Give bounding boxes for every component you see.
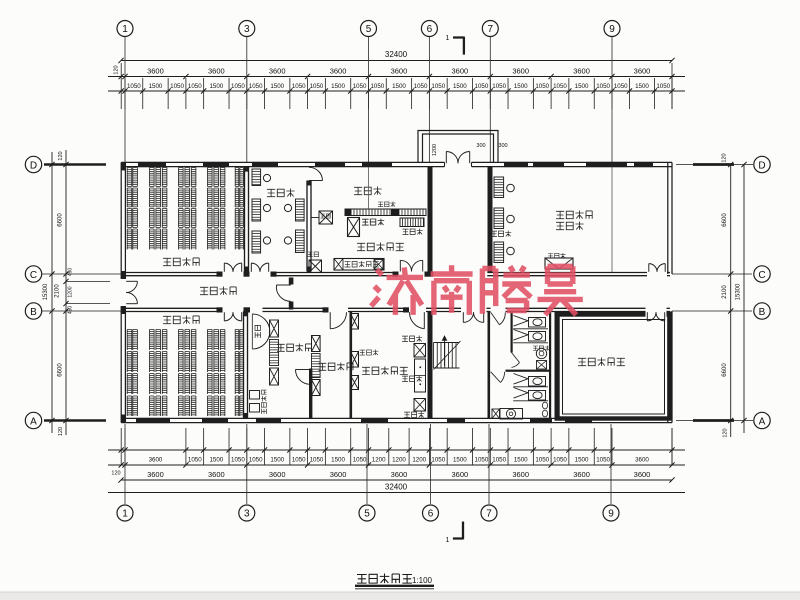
svg-text:15300: 15300: [736, 283, 742, 300]
svg-text:C: C: [30, 270, 37, 281]
svg-text:1500: 1500: [392, 83, 406, 90]
svg-text:3600: 3600: [208, 67, 225, 76]
svg-text:1050: 1050: [614, 83, 628, 90]
svg-text:3600: 3600: [269, 67, 286, 76]
svg-text:1050: 1050: [170, 83, 184, 90]
svg-text:1050: 1050: [310, 83, 324, 90]
svg-text:1050: 1050: [292, 83, 306, 90]
svg-text:120: 120: [722, 153, 728, 162]
svg-text:1500: 1500: [209, 457, 223, 464]
svg-text:3600: 3600: [391, 67, 408, 76]
svg-text:1050: 1050: [535, 457, 549, 464]
svg-text:D: D: [30, 160, 37, 171]
svg-text:B: B: [759, 307, 766, 318]
svg-text:1500: 1500: [270, 457, 284, 464]
svg-text:450: 450: [68, 306, 74, 315]
svg-text:1050: 1050: [127, 83, 141, 90]
svg-text:9: 9: [609, 24, 615, 35]
svg-text:5: 5: [366, 24, 372, 35]
svg-text:3600: 3600: [330, 470, 347, 479]
svg-text:1500: 1500: [453, 83, 467, 90]
svg-text:120: 120: [58, 151, 64, 160]
svg-text:120: 120: [114, 65, 120, 74]
svg-text:32400: 32400: [385, 50, 408, 59]
svg-text:3600: 3600: [512, 470, 529, 479]
svg-text:3: 3: [244, 509, 250, 520]
svg-text:3600: 3600: [269, 470, 286, 479]
svg-text:B: B: [30, 307, 37, 318]
svg-text:A: A: [30, 416, 37, 427]
svg-text:1050: 1050: [249, 457, 263, 464]
svg-text:1: 1: [446, 35, 450, 42]
svg-text:300: 300: [476, 143, 485, 149]
svg-text:1500: 1500: [514, 83, 528, 90]
svg-text:3: 3: [244, 24, 250, 35]
svg-text:1050: 1050: [492, 83, 506, 90]
svg-text:1500: 1500: [453, 457, 467, 464]
svg-text:1050: 1050: [353, 457, 367, 464]
svg-text:1: 1: [122, 24, 128, 35]
svg-text:120: 120: [58, 427, 64, 436]
svg-text:3600: 3600: [635, 457, 649, 464]
svg-text:1050: 1050: [310, 457, 324, 464]
svg-text:15300: 15300: [43, 283, 49, 300]
svg-text:1050: 1050: [370, 83, 384, 90]
svg-text:120: 120: [723, 428, 729, 437]
svg-text:1050: 1050: [492, 457, 506, 464]
svg-text:1050: 1050: [292, 457, 306, 464]
svg-text:6: 6: [428, 509, 434, 520]
svg-text:450: 450: [68, 268, 74, 277]
svg-text:1200: 1200: [432, 144, 438, 156]
svg-text:1050: 1050: [656, 83, 670, 90]
svg-text:1: 1: [446, 537, 450, 544]
svg-text:1050: 1050: [475, 457, 489, 464]
svg-text:1050: 1050: [188, 83, 202, 90]
svg-text:1050: 1050: [553, 457, 567, 464]
svg-text:7: 7: [486, 509, 492, 520]
svg-text:1050: 1050: [535, 83, 549, 90]
svg-text:1: 1: [122, 509, 128, 520]
svg-text:3600: 3600: [573, 67, 590, 76]
svg-text:300: 300: [498, 143, 507, 149]
svg-text:1050: 1050: [596, 457, 610, 464]
svg-text:3600: 3600: [512, 67, 529, 76]
svg-text:1:100: 1:100: [412, 576, 433, 585]
svg-text:3600: 3600: [391, 470, 408, 479]
svg-text:3600: 3600: [147, 67, 164, 76]
svg-text:3600: 3600: [452, 470, 469, 479]
svg-text:D: D: [758, 160, 765, 171]
svg-text:1500: 1500: [270, 83, 284, 90]
svg-text:1050: 1050: [475, 83, 489, 90]
svg-text:1500: 1500: [514, 457, 528, 464]
svg-text:1050: 1050: [188, 457, 202, 464]
svg-text:6600: 6600: [58, 363, 64, 377]
svg-text:3600: 3600: [573, 470, 590, 479]
svg-text:1050: 1050: [596, 83, 610, 90]
svg-text:3600: 3600: [208, 470, 225, 479]
svg-text:6600: 6600: [722, 213, 728, 227]
svg-text:3600: 3600: [147, 470, 164, 479]
svg-text:1500: 1500: [635, 83, 649, 90]
svg-text:6: 6: [427, 24, 433, 35]
svg-text:6600: 6600: [722, 363, 728, 377]
svg-text:6600: 6600: [58, 213, 64, 227]
svg-text:1500: 1500: [209, 83, 223, 90]
svg-text:1500: 1500: [149, 83, 163, 90]
svg-text:3600: 3600: [149, 457, 163, 464]
svg-text:32400: 32400: [385, 483, 408, 492]
svg-text:1200: 1200: [372, 457, 386, 464]
svg-text:3600: 3600: [330, 67, 347, 76]
svg-text:1050: 1050: [431, 83, 445, 90]
svg-text:3600: 3600: [452, 67, 469, 76]
svg-text:1500: 1500: [331, 83, 345, 90]
svg-text:1050: 1050: [231, 83, 245, 90]
svg-text:1500: 1500: [575, 83, 589, 90]
svg-text:2100: 2100: [722, 285, 728, 299]
svg-text:1050: 1050: [414, 83, 428, 90]
svg-text:1200: 1200: [412, 457, 426, 464]
svg-text:1500: 1500: [575, 457, 589, 464]
svg-text:C: C: [758, 270, 765, 281]
svg-text:1500: 1500: [331, 457, 345, 464]
svg-text:2100: 2100: [55, 284, 61, 298]
svg-text:7: 7: [488, 24, 494, 35]
svg-text:9: 9: [608, 509, 614, 520]
svg-text:1200: 1200: [392, 457, 406, 464]
svg-text:A: A: [759, 416, 766, 427]
svg-text:5: 5: [364, 509, 370, 520]
svg-text:3600: 3600: [634, 67, 651, 76]
svg-text:120: 120: [111, 471, 120, 477]
svg-text:3600: 3600: [634, 470, 651, 479]
svg-text:1050: 1050: [353, 83, 367, 90]
svg-text:1050: 1050: [553, 83, 567, 90]
svg-text:1050: 1050: [249, 83, 263, 90]
svg-text:1200: 1200: [68, 286, 74, 297]
svg-text:1050: 1050: [231, 457, 245, 464]
svg-text:1050: 1050: [431, 457, 445, 464]
